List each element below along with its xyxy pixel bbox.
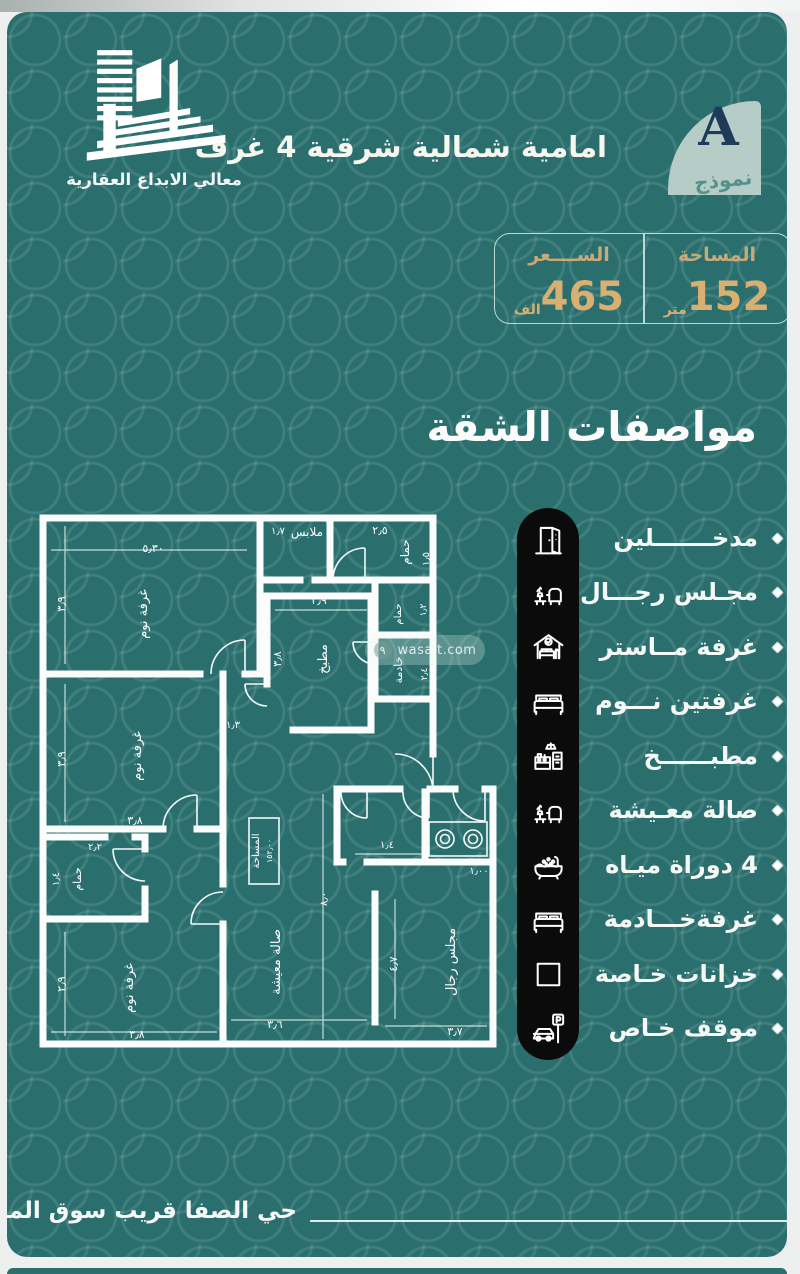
- plan-label: ٨٫٠: [319, 892, 330, 906]
- feature-list: مدخـــــــلينمجـلس رجـــالغرفة مــاسترغر…: [517, 508, 785, 1060]
- price-unit: الف: [514, 302, 541, 318]
- plan-label: ٥٫٣٠: [142, 542, 163, 555]
- area-value-cell: 152 متر: [643, 270, 787, 323]
- feature-row: 4 دوراة ميـاه: [517, 841, 785, 891]
- plan-label: ١٫٣: [226, 720, 241, 731]
- master-bedroom-icon: [517, 623, 579, 673]
- plan-label: ٣٫٩: [55, 596, 68, 611]
- feature-row: غرفةخـــادمة: [517, 895, 785, 945]
- model-word: نموذج: [693, 165, 753, 195]
- plan-label: ٣٫٨: [129, 1028, 144, 1041]
- feature-label: مطبــــــخ: [643, 742, 758, 770]
- plan-area-box-value: ١٥٢٫٠٠: [265, 839, 274, 863]
- model-badge: A نموذج: [668, 101, 761, 195]
- plan-label: ٢٫٩: [311, 594, 326, 607]
- plan-area-box-title: المساحة: [251, 833, 262, 868]
- plan-label: ملابس: [291, 525, 323, 540]
- diamond-bullet-icon: [771, 913, 784, 926]
- feature-label: مدخـــــــلين: [613, 524, 758, 552]
- feature-label: صالة معـيشة: [608, 796, 758, 824]
- next-card-strip: [7, 1268, 787, 1274]
- diamond-bullet-icon: [771, 587, 784, 600]
- brand-name: معالي الابداع العقارية: [59, 170, 249, 189]
- top-edge-strip: [0, 0, 800, 12]
- feature-row: غرفة مــاستر: [517, 623, 785, 673]
- plan-label: ٢٫٥: [372, 524, 387, 537]
- feature-label: مجـلس رجـــال: [580, 578, 758, 606]
- feature-label: خزانات خـاصة: [595, 959, 758, 987]
- diamond-bullet-icon: [771, 968, 784, 981]
- floor-plan-drawing: ٥٫٣٠٣٫٩غرفة نوم١٫٧ملابس٢٫٥حمام١٫٥٢٫٩مطبخ…: [35, 504, 499, 1056]
- area-unit: متر: [664, 302, 687, 318]
- feature-label: 4 دوراة ميـاه: [605, 851, 758, 879]
- floor-plan: ٥٫٣٠٣٫٩غرفة نوم١٫٧ملابس٢٫٥حمام١٫٥٢٫٩مطبخ…: [35, 504, 499, 1056]
- feature-row: مجـلس رجـــال: [517, 568, 785, 618]
- price-value: 465: [541, 277, 625, 317]
- feature-row: صالة معـيشة: [517, 786, 785, 836]
- area-value: 152: [687, 277, 771, 317]
- area-header: المساحة: [643, 234, 787, 270]
- footer-divider-line: [310, 1220, 787, 1222]
- plan-label: ٢٫٢: [88, 842, 102, 853]
- plan-label: ٢٫٤: [420, 668, 430, 681]
- flyer-page: معالي الابداع العقارية امامية شمالية شرق…: [0, 0, 800, 1274]
- brand-logo: معالي الابداع العقارية: [59, 46, 249, 189]
- info-table-divider: [643, 234, 645, 323]
- plan-label: ١٫٥: [421, 552, 432, 566]
- plan-label: حمام: [393, 603, 404, 624]
- watermark-text: wasalt.com: [398, 643, 477, 658]
- page-title: امامية شمالية شرقية 4 غرف: [302, 130, 607, 164]
- diamond-bullet-icon: [771, 750, 784, 763]
- watermark: wasalt.com ٩: [365, 635, 485, 665]
- feature-label: غرفةخـــادمة: [604, 905, 758, 933]
- maid-bed-icon: [517, 895, 579, 945]
- diamond-bullet-icon: [771, 532, 784, 545]
- plan-label: ٢٫٩: [55, 976, 68, 991]
- plan-label: غرفة نوم: [136, 589, 151, 639]
- bed-icon: [517, 677, 579, 727]
- plan-label: حمام: [71, 867, 84, 890]
- plan-label: مطبخ: [316, 644, 331, 674]
- diamond-bullet-icon: [771, 804, 784, 817]
- feature-row: غرفتين نـــوم: [517, 677, 785, 727]
- plan-label: ١٫٠٠: [469, 866, 488, 877]
- feature-label: غرفة مــاستر: [599, 633, 758, 661]
- flyer-card: معالي الابداع العقارية امامية شمالية شرق…: [7, 12, 787, 1257]
- plan-label: غرفة نوم: [130, 731, 145, 781]
- location-note: حي الصفا قريب سوق المرجان: [35, 1198, 297, 1224]
- plan-label: ١٫٤: [51, 872, 62, 886]
- watermark-logo-icon: ٩: [374, 641, 392, 659]
- plan-label: ٣٫٨: [271, 651, 284, 666]
- plan-label: صالة معيشة: [269, 929, 284, 995]
- kitchen-icon: [517, 732, 579, 782]
- closet-square-icon: [517, 950, 579, 1000]
- plan-label: ٤٫٧: [387, 956, 400, 971]
- feature-row: مطبــــــخ: [517, 732, 785, 782]
- plan-label: ١٫٤: [380, 840, 394, 851]
- diamond-bullet-icon: [771, 859, 784, 872]
- plan-label: ٣٫٨: [127, 814, 142, 827]
- plan-label: حمام: [398, 539, 412, 564]
- plan-label: ٣٫٩: [55, 751, 68, 766]
- diamond-bullet-icon: [771, 641, 784, 654]
- plan-label: غرفة نوم: [122, 963, 137, 1013]
- living-sofa-icon: [517, 786, 579, 836]
- plan-label: مجلس رجال: [444, 928, 459, 996]
- bathtub-icon: [517, 841, 579, 891]
- plan-label: ٣٫٧: [447, 1025, 462, 1038]
- majlis-sofa-icon: [517, 568, 579, 618]
- door-icon: [517, 514, 579, 564]
- plan-label: ١٫٢: [419, 604, 429, 617]
- feature-label: موقف خـاص: [609, 1014, 758, 1042]
- model-letter: A: [698, 99, 738, 156]
- diamond-bullet-icon: [771, 1022, 784, 1035]
- feature-row: مدخـــــــلين: [517, 514, 785, 564]
- feature-row: موقف خـاص: [517, 1004, 785, 1054]
- price-value-cell: 465 الف: [495, 270, 643, 323]
- plan-label: ١٫٧: [271, 526, 286, 537]
- parking-icon: [517, 1004, 579, 1054]
- diamond-bullet-icon: [771, 695, 784, 708]
- feature-label: غرفتين نـــوم: [595, 687, 758, 715]
- feature-row: خزانات خـاصة: [517, 950, 785, 1000]
- plan-label: ٣٫٦: [267, 1018, 282, 1031]
- info-table: المساحة الســــعر 152 متر 465 الف: [494, 233, 787, 324]
- price-header: الســــعر: [495, 234, 643, 270]
- section-title: مواصفات الشقة: [426, 403, 757, 451]
